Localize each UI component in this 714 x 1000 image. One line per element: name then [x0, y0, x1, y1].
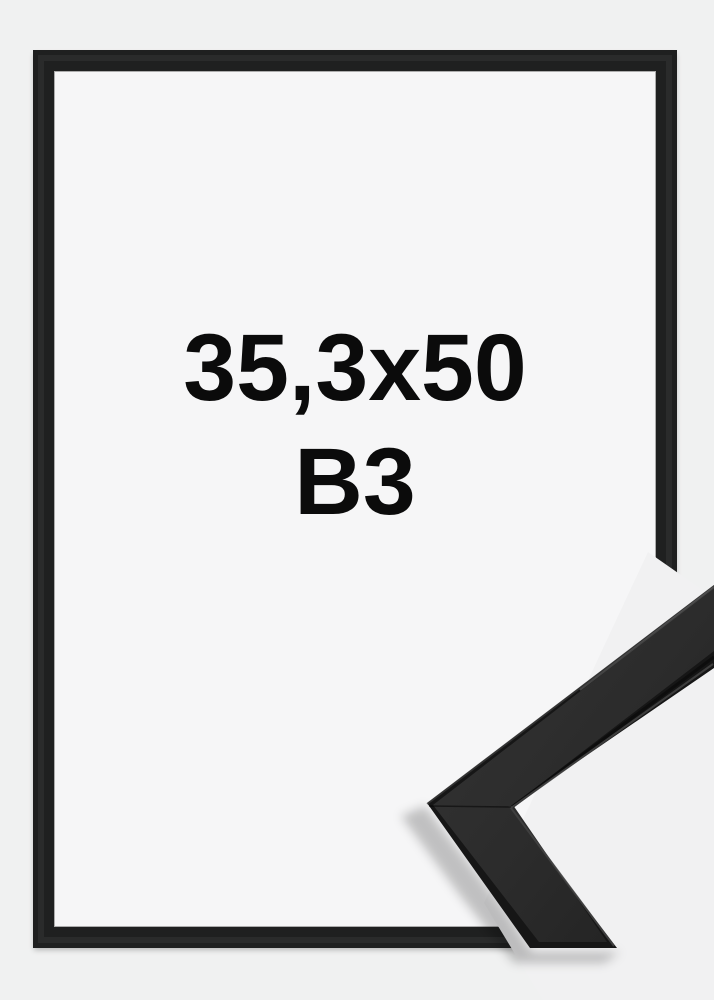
frame-format-label: B3 [54, 425, 656, 539]
product-image: 35,3x50 B3 [0, 0, 714, 1000]
frame-size-labels: 35,3x50 B3 [54, 311, 656, 539]
frame-size-label: 35,3x50 [54, 311, 656, 425]
